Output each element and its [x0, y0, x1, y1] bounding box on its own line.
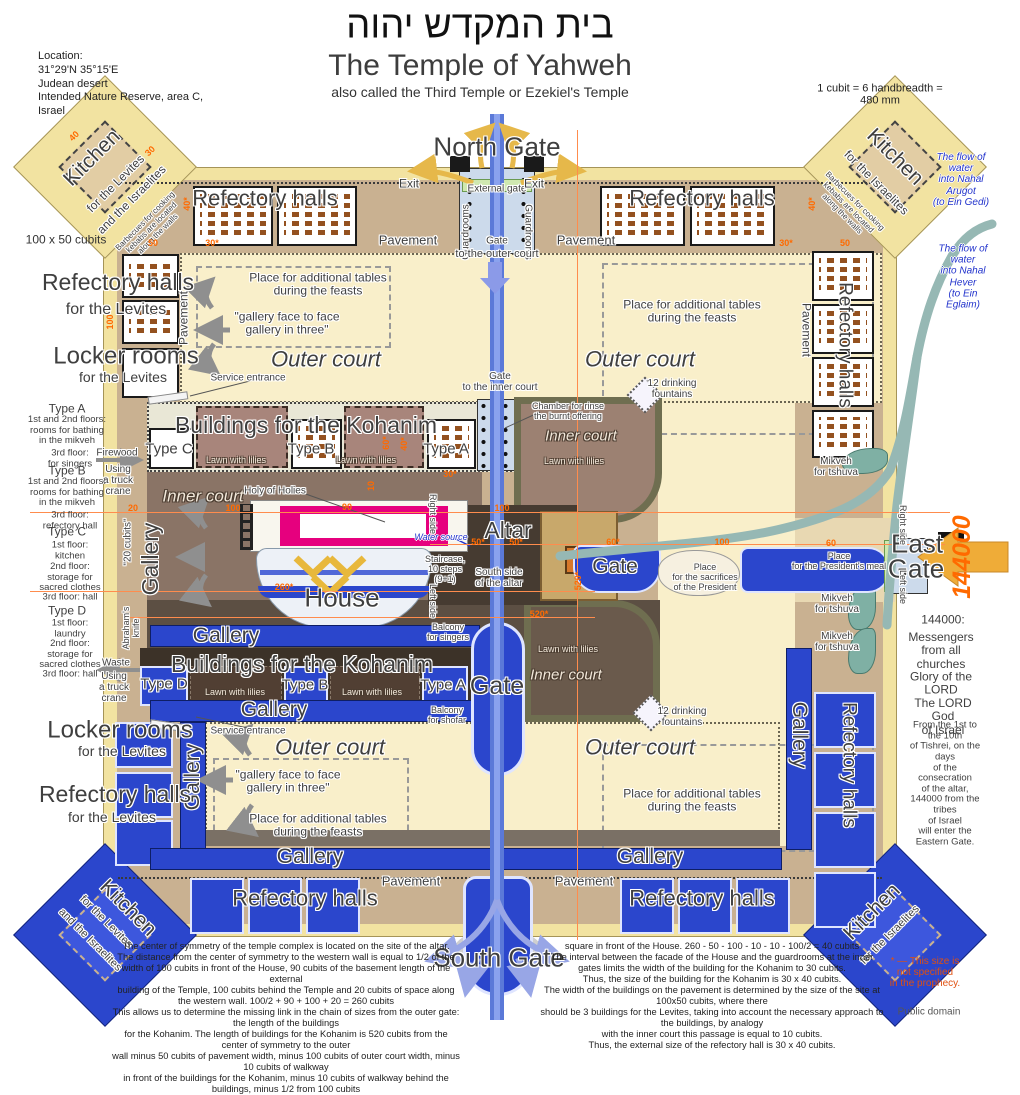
left-side-label-outer: Left side	[898, 570, 908, 604]
holy-of-holies-label: Holy of Holies	[244, 485, 306, 496]
dim-w-40sv: 40*	[182, 197, 192, 211]
water-flow-note-2: The flow of water into Nahal Hever (to E…	[935, 243, 992, 310]
dim-w-50: 50	[148, 238, 158, 248]
gate-to-inner-label: Gate to the inner court	[462, 371, 537, 393]
mikveh-label-3: Mikveh for tshuva	[815, 631, 859, 653]
abraham-knife-label: Abraham's knife	[121, 607, 141, 650]
house-label: House	[304, 583, 379, 612]
court-arrows-nw-icon	[198, 280, 230, 373]
gallery-label-n1: Gallery	[193, 624, 260, 648]
mikveh-label-1: Mikveh for tshuva	[814, 456, 858, 478]
external-gate-label: External gate	[468, 183, 527, 194]
tables-note-sw: Place for additional tables during the f…	[249, 813, 386, 840]
pavement-label-ev: Pavement	[799, 303, 812, 357]
pavement-label-wv: Pavement	[177, 291, 190, 345]
guide-line-h1	[30, 512, 950, 513]
right-side-label-outer: Right side	[898, 505, 908, 545]
note-glory: Glory of the LORD	[902, 671, 981, 698]
refectory-sub-w: for the Levites	[66, 301, 167, 319]
refectory-label-b1: Refectory halls	[232, 887, 378, 912]
type-c-line1: 1st floor: kitchen	[52, 540, 88, 561]
type-a-label-s: Type A	[420, 678, 466, 695]
locker-label-sw: Locker rooms	[47, 718, 192, 745]
chamber-label: Chamber for rinse the burnt offering	[532, 401, 604, 421]
location-note: Location: 31°29'N 35°15'E Judean desert …	[38, 50, 203, 119]
pavement-label-sw: Pavement	[382, 875, 441, 890]
outer-court-label-ne: Outer court	[585, 348, 695, 373]
cubit-note: 1 cubit = 6 handbreadth = 480 mm	[810, 83, 950, 108]
gallery-quote-nw: "gallery face to face gallery in three"	[235, 311, 340, 338]
type-b-line1: 1st and 2nd floors: rooms for bathing in…	[28, 477, 106, 509]
kohanim-label-n: Buildings for the Kohanim	[175, 413, 437, 439]
dim-a-50sb: 50*	[509, 537, 523, 547]
refectory-label-sw: Refectory halls	[39, 782, 191, 808]
to-outer-court-label: to the outer court	[455, 248, 538, 260]
south-side-label: South side of the altar	[475, 567, 522, 589]
footer-paragraph-right: square in front of the House. 260 - 50 -…	[536, 941, 888, 1051]
firewood-label: Firewood	[96, 447, 137, 458]
gallery-label-wv-upper: Gallery	[138, 523, 164, 596]
court-arrows-w-icon	[180, 500, 208, 604]
altar-label: Altar	[484, 518, 531, 544]
dim-520sb: 520*	[573, 572, 583, 591]
guide-line-h4	[130, 617, 595, 618]
locker-sub-sw: for the Levites	[78, 744, 166, 760]
lawn-label-ne: Lawn with lilies	[544, 456, 604, 466]
kohanim-label-s: Buildings for the Kohanim	[171, 652, 433, 678]
outer-court-label-sw: Outer court	[275, 736, 385, 761]
sacrifices-label: Place for the sacrifices of the Presiden…	[672, 562, 738, 592]
mikveh-label-2: Mikveh for tshuva	[815, 593, 859, 615]
exit-label-e: Exit	[524, 177, 544, 190]
inner-court-label-ne: Inner court	[545, 429, 617, 446]
type-a-line1: 1st and 2nd floors: rooms for bathing in…	[28, 415, 106, 447]
title-hebrew: בית המקדש יהוה	[346, 5, 613, 48]
refectory-label-ne: Refectory halls	[629, 187, 775, 212]
type-c-label: Type C	[145, 442, 193, 459]
type-c-line3: 3rd floor: hall	[43, 593, 98, 604]
service-entrance-n: Service entrance	[210, 372, 285, 383]
type-b-label-s: Type B	[282, 678, 329, 695]
lawn-label-s2: Lawn with lilies	[342, 687, 402, 697]
waste-label: Waste	[102, 657, 130, 668]
big-144000-label: 144000	[948, 515, 976, 598]
dim-c-100a: 100	[225, 503, 240, 513]
presidents-meal-label: Place for the President's meal	[792, 551, 886, 571]
gallery-label-s2: Gallery	[617, 845, 684, 869]
locker-label-w: Locker rooms	[53, 344, 198, 371]
dim-e-50: 50	[840, 238, 850, 248]
dim-e-60s: 60*	[606, 537, 620, 547]
type-d-line2: 2nd floor: storage for sacred clothes	[39, 639, 100, 671]
site-dim-note: 100 x 50 cubits	[26, 233, 107, 246]
gallery-label-n2: Gallery	[241, 698, 308, 722]
east-gate-label-2: Gate	[888, 554, 944, 583]
inner-east-gate-label: Gate	[592, 555, 638, 579]
note-144000: 144000:	[921, 613, 964, 626]
refectory-label-ev: Refectory halls	[834, 282, 855, 408]
pavement-label-nw: Pavement	[379, 234, 438, 249]
footer-paragraph-left: The center of symmetry of the temple com…	[112, 941, 460, 1095]
page-title: The Temple of Yahweh	[328, 49, 632, 83]
page-subtitle: also called the Third Temple or Ezekiel'…	[331, 85, 629, 101]
type-d-label: Type D	[140, 677, 188, 694]
dim-a-50sa: 50*	[471, 537, 485, 547]
refectory-label-nw: Refectory halls	[192, 187, 338, 212]
lawn-label-n2: Lawn with lilies	[336, 455, 396, 465]
outer-court-label-nw: Outer court	[271, 348, 381, 373]
dim-w-30s: 30*	[205, 238, 219, 248]
dim-520sa: 520*	[530, 609, 549, 619]
gallery-quote-sw: "gallery face to face gallery in three"	[236, 769, 341, 796]
right-side-label-inner: Right side	[428, 494, 438, 534]
dim-v-30s: 30*	[443, 469, 457, 479]
type-d-line3: 3rd floor: hall	[43, 670, 98, 681]
outer-court-label-se: Outer court	[585, 736, 695, 761]
dim-e-100: 100	[714, 537, 729, 547]
south-inner-gate-label: Gate	[470, 672, 524, 700]
north-gate-label: North Gate	[433, 132, 560, 161]
dim-c-90: 90	[342, 502, 352, 512]
fountains-label-ne: 12 drinking fountains	[648, 378, 697, 400]
locker-sub-w: for the Levites	[79, 370, 167, 386]
note-messengers: Messengers from all churches	[902, 631, 981, 671]
lawn-label-se: Lawn with lilies	[538, 644, 598, 654]
refectory-label-b2: Refectory halls	[629, 887, 775, 912]
service-entrance-s: Service entrance	[210, 725, 285, 736]
public-domain-label: Public domain	[898, 1006, 961, 1017]
dim-260s: 260*	[275, 582, 294, 592]
cubits20-label: "20 cubits"	[122, 518, 133, 565]
temple-diagram-page: { "palette":{"blue":"#2b46cc","cream":"#…	[0, 0, 1020, 1030]
tables-note-nw: Place for additional tables during the f…	[249, 272, 386, 299]
balcony-singers-label: Balcony for singers	[427, 622, 469, 642]
staircase-label: Staircase, 10 steps (9+1)	[425, 554, 465, 584]
type-d-line1: 1st floor: laundry	[52, 618, 88, 639]
exit-label-w: Exit	[399, 177, 419, 190]
truck-crane-label-1: Using a truck crane	[103, 464, 133, 498]
pavement-label-ne: Pavement	[557, 234, 616, 249]
dim-e-60: 60	[826, 538, 836, 548]
dim-v-10: 10	[366, 481, 376, 491]
truck-crane-label-2: Using a truck crane	[99, 671, 129, 705]
inner-court-label-se: Inner court	[530, 668, 602, 685]
north-inner-gate-label: Gate	[486, 235, 508, 246]
left-side-label-inner: Left side	[428, 584, 438, 618]
dim-e-40sv: 40*	[807, 197, 817, 211]
balcony-shofar-label: Balcony for shofar	[428, 705, 466, 725]
tables-note-ne: Place for additional tables during the f…	[623, 299, 760, 326]
guide-line-v1	[577, 130, 578, 940]
dim-c-100b: 100	[494, 503, 509, 513]
fountains-label-se: 12 drinking fountains	[658, 706, 707, 728]
refectory-label-sev: Refectory halls	[838, 702, 859, 828]
lawn-label-s1: Lawn with lilies	[205, 687, 265, 697]
tables-note-se: Place for additional tables during the f…	[623, 788, 760, 815]
lawn-label-n1: Lawn with lilies	[206, 455, 266, 465]
dim-c-20: 20	[128, 503, 138, 513]
refectory-label-w: Refectory halls	[42, 270, 194, 296]
dim-v-60s: 60*	[381, 436, 391, 450]
gallery-label-s1: Gallery	[277, 845, 344, 869]
type-b-label-n: Type B	[288, 442, 335, 459]
guide-line-h2	[430, 544, 945, 545]
water-source-label: Water source	[414, 532, 467, 542]
gallery-label-ev: Gallery	[787, 702, 811, 769]
dim-e-30s: 30*	[779, 238, 793, 248]
pavement-label-se: Pavement	[555, 875, 614, 890]
note-tishrei: From the 1st to the 10th of Tishrei, on …	[908, 720, 983, 848]
dim-w-100v: 100	[105, 314, 115, 329]
type-d-title: Type D	[48, 604, 86, 617]
water-flow-note-1: The flow of water into Nahal Arugot (to …	[932, 152, 991, 208]
refectory-sub-sw: for the Levites	[68, 810, 156, 826]
size-footnote: * — This size is not specified in the pr…	[890, 956, 960, 990]
dim-v-40s: 40*	[399, 437, 409, 451]
north-down-arrow-icon	[480, 262, 510, 294]
type-c-title: Type C	[48, 525, 86, 538]
type-a-label-n: Type A	[423, 442, 469, 459]
type-c-line2: 2nd floor: storage for sacred clothes	[39, 562, 100, 594]
